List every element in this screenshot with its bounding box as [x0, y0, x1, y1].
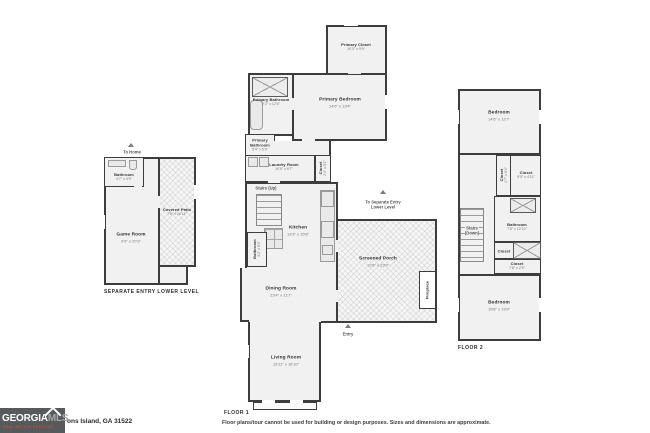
- window: [246, 345, 249, 358]
- logo-georgia-text: GEORGIA: [2, 413, 48, 424]
- washer: [248, 157, 258, 167]
- logo-mls-text: MLS: [48, 413, 69, 424]
- lower-level-title: SEPARATE ENTRY LOWER LEVEL: [104, 289, 199, 295]
- door-opening: [268, 180, 280, 183]
- bedroom-lower-label: Bedroom 15'8" x 13'9": [488, 300, 510, 311]
- window: [290, 400, 303, 403]
- window: [194, 185, 197, 199]
- shower: [510, 198, 536, 213]
- kitchen-label: Kitchen 13'3" x 15'8": [287, 225, 309, 236]
- floor-plan-canvas: To Home Bathroom 4'7" x 4'9" Covered Pat…: [0, 0, 650, 433]
- screened-porch-label: Screened Porch 19'8" x 23'9": [359, 256, 397, 267]
- kitchen-sink: [322, 245, 333, 255]
- logo-tagline: REAL ESTATE SERVICES: [3, 425, 54, 429]
- closet-wide-label: Closet 7'8" x 2'5": [509, 261, 525, 271]
- window: [102, 215, 105, 229]
- toilet: [129, 160, 137, 170]
- door-opening: [348, 71, 361, 74]
- lower-level-extension: [158, 265, 188, 285]
- closet-tall-label: Closet 2'7" x 6'4": [499, 167, 509, 183]
- floor1-title: FLOOR 1: [224, 410, 249, 416]
- bathroom-label: Bathroom 4'7" x 4'9": [114, 172, 134, 182]
- door-opening: [335, 290, 338, 302]
- property-address: ons Island, GA 31522: [67, 418, 132, 425]
- primary-bedroom-label: Primary Bedroom 14'6" x 13'4": [319, 97, 361, 108]
- logo-text: GEORGIAMLS: [2, 413, 68, 424]
- to-home-label: To Home: [123, 149, 141, 154]
- stove: [321, 221, 334, 238]
- door-opening: [156, 196, 160, 208]
- door-opening: [302, 139, 315, 142]
- dryer: [259, 157, 269, 167]
- dining-room-label: Dining Room 23'4" x 11'7": [266, 286, 297, 297]
- up-arrow-icon: [380, 190, 386, 194]
- entry-label: Entry: [343, 331, 354, 336]
- bedroom-upper-label: Bedroom 14'6" x 12'7": [488, 110, 510, 121]
- shower: [252, 77, 288, 97]
- window: [539, 298, 542, 312]
- closet-small-label: Closet: [498, 248, 511, 253]
- fireplace-label: Fireplace: [424, 281, 429, 299]
- up-arrow-icon: [128, 143, 134, 147]
- door-opening: [134, 185, 142, 188]
- shower: [513, 242, 541, 259]
- window: [262, 400, 275, 403]
- floor2-title: FLOOR 2: [458, 345, 483, 351]
- closet-mid-label: Closet 9'5" x 4'11": [517, 170, 534, 180]
- window: [344, 23, 358, 26]
- primary-closet-label: Primary Closet 10'3" x 9'9": [341, 42, 371, 52]
- window: [456, 298, 459, 312]
- game-room-label: Game Room 9'9" x 20'3": [116, 232, 145, 243]
- living-room-label: Living Room 13'11" x 16'10": [271, 355, 301, 366]
- stairs-down-label: Stairs (Down): [465, 226, 479, 237]
- closet-f1-label: Closet 2'4" x 5'1": [318, 160, 328, 176]
- window: [385, 95, 388, 109]
- up-arrow-icon: [345, 324, 351, 328]
- door-opening: [292, 98, 295, 110]
- window: [456, 110, 459, 124]
- to-lower-level-label: To Separate Entry Lower Level: [365, 200, 401, 211]
- laundry-room-label: Laundry Room 10'0" x 6'7": [269, 162, 298, 172]
- covered-patio-label: Covered Patio 7'6" x 26'11": [163, 207, 191, 217]
- refrigerator: [321, 191, 334, 207]
- bathroom-f1-label: Bathroom 3'2" x 8'3": [252, 239, 262, 259]
- bathroom-f2-label: Bathroom 7'8" x 12'10": [507, 222, 527, 232]
- disclaimer-text: Floor plans/tour cannot be used for buil…: [222, 420, 491, 426]
- door-opening: [335, 240, 338, 252]
- wall-segment: [458, 274, 541, 276]
- stairs-up-label: Stairs (Up): [255, 185, 276, 190]
- vanity-sink: [108, 160, 126, 167]
- stairs-up-treads: [256, 194, 282, 226]
- entry-steps: [253, 402, 317, 410]
- primary-bathroom-label: Primary Bathroom 7'2" x 12'6": [253, 97, 290, 107]
- window: [539, 110, 542, 124]
- primary-bathroom-2-label: Primary Bathroom 5'4" x 5'3": [247, 137, 273, 152]
